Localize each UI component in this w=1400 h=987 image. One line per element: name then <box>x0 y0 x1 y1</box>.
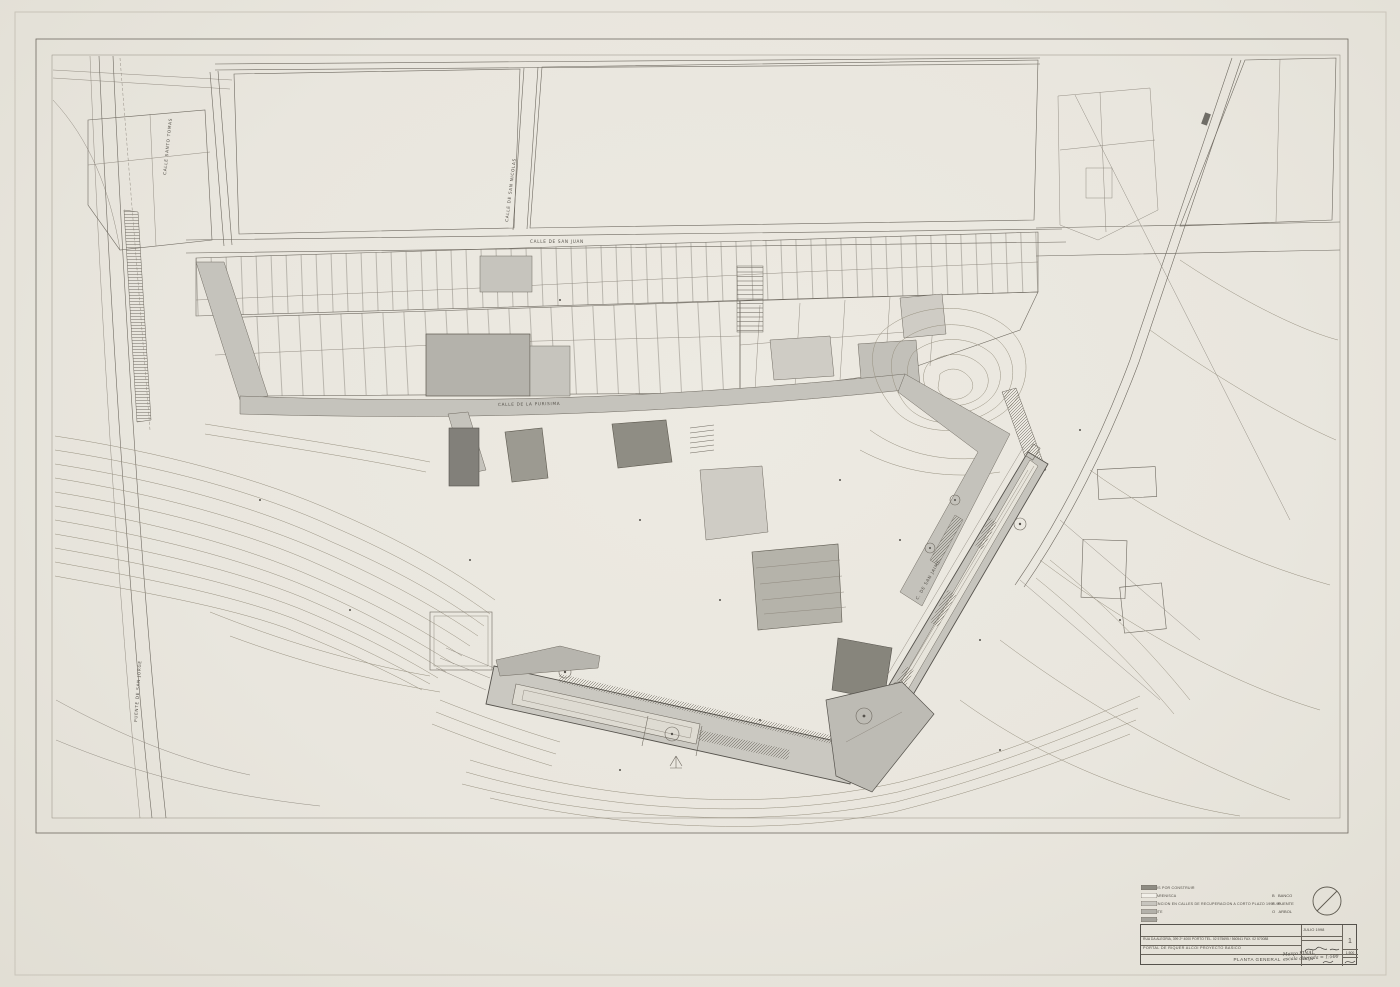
legend-item: EXISTENTE <box>1141 909 1163 915</box>
street-label-santo-tomas: CALLE SANTO TOMAS <box>162 118 173 175</box>
upper-terrace <box>496 646 600 676</box>
scale-value: 1:500 <box>1342 950 1358 957</box>
legend-swatch <box>1141 893 1157 898</box>
legend-symbol-row: F FUENTE <box>1272 900 1294 908</box>
symbol-label: ARBOL <box>1278 909 1292 914</box>
road-marker <box>1201 112 1211 125</box>
junction-plaza <box>826 682 934 792</box>
legend-swatch <box>1141 885 1157 890</box>
street-label-puente-san-jorge: PUENTE DE SAN JORGE <box>133 660 142 722</box>
top-city-blocks: CALLE SANTO TOMAS CALLE DE SAN NICOLAS C… <box>88 58 1066 253</box>
parcel-fabric <box>196 232 1038 396</box>
legend-item: EDIFICIOS POR CONSTRUIR <box>1141 885 1195 891</box>
left-contours <box>55 424 495 692</box>
new-building-slab <box>436 646 858 784</box>
symbol-key: F <box>1272 901 1274 906</box>
sheet-number: 1 <box>1342 935 1358 949</box>
hoja-label: HOJA <box>1303 957 1323 965</box>
street-san-jaime: C. DE SAN JAIME <box>898 374 1010 606</box>
north-symbol <box>1309 883 1345 919</box>
address: RUA DA ALEGRIA, 399 2º 4000 PORTO TEL. 0… <box>1143 937 1300 944</box>
gray-building <box>612 420 672 468</box>
symbol-label: BANCO <box>1278 893 1292 898</box>
legend-swatch <box>1141 909 1157 914</box>
new-building-wing <box>826 444 1048 792</box>
approval-mark <box>1342 958 1358 966</box>
legend-swatch <box>1141 901 1157 906</box>
legend-item: URBANO <box>1141 917 1158 923</box>
legend-symbols: B BANCO F FUENTE O ARBOL <box>1272 892 1294 916</box>
hoja-signature <box>1321 958 1337 966</box>
legend-symbol-row: O ARBOL <box>1272 908 1294 916</box>
stair-street <box>737 266 763 332</box>
shaded-parcel <box>530 346 570 396</box>
site-plan-map: PUENTE DE SAN JORGE CALLE SANTO TOMAS CA… <box>0 0 1400 987</box>
shaded-building-large <box>426 334 530 396</box>
bridge-deck <box>124 210 151 422</box>
shaded-parcel <box>480 256 532 292</box>
fountain-symbol <box>670 756 682 768</box>
river-bridge-road: PUENTE DE SAN JORGE <box>56 56 320 818</box>
symbol-key: O <box>1272 909 1275 914</box>
symbol-key: B <box>1272 893 1275 898</box>
drawing-title: PLANTA GENERAL <box>1201 957 1281 965</box>
project-title: PORTAL DE RIQUER ALCOI PROYECTO BASICO <box>1143 946 1300 953</box>
sheet-frame <box>15 12 1386 975</box>
right-roads-fields <box>960 58 1340 816</box>
symbol-label: FUENTE <box>1278 901 1294 906</box>
walled-garden <box>430 612 492 670</box>
drawing-sheet: PUENTE DE SAN JORGE CALLE SANTO TOMAS CA… <box>0 0 1400 987</box>
street-label-san-juan: CALLE DE SAN JUAN <box>530 239 584 244</box>
gray-building <box>505 428 548 482</box>
shaded-parcel <box>770 336 834 380</box>
street-label-san-nicolas: CALLE DE SAN NICOLAS <box>504 158 517 222</box>
terrace-block <box>752 544 842 630</box>
title-block: ALVARO SIZA Arqt. Lda. JULIO 1998 RUA DA… <box>1140 924 1357 965</box>
legend-item: PIEDRA ARENISCA <box>1141 893 1176 899</box>
top-left-roads <box>53 70 232 250</box>
legend-label: INTERVENCION EN CALLES DE RECUPERACION A… <box>1141 902 1281 906</box>
legend-symbol-row: B BANCO <box>1272 892 1294 900</box>
dark-building <box>449 428 479 486</box>
legend-swatch <box>1141 917 1157 922</box>
date-cell: JULIO 1998 <box>1303 927 1341 935</box>
terrace-parcel <box>700 466 768 540</box>
legend-item: INTERVENCION EN CALLES DE RECUPERACION A… <box>1141 901 1281 907</box>
